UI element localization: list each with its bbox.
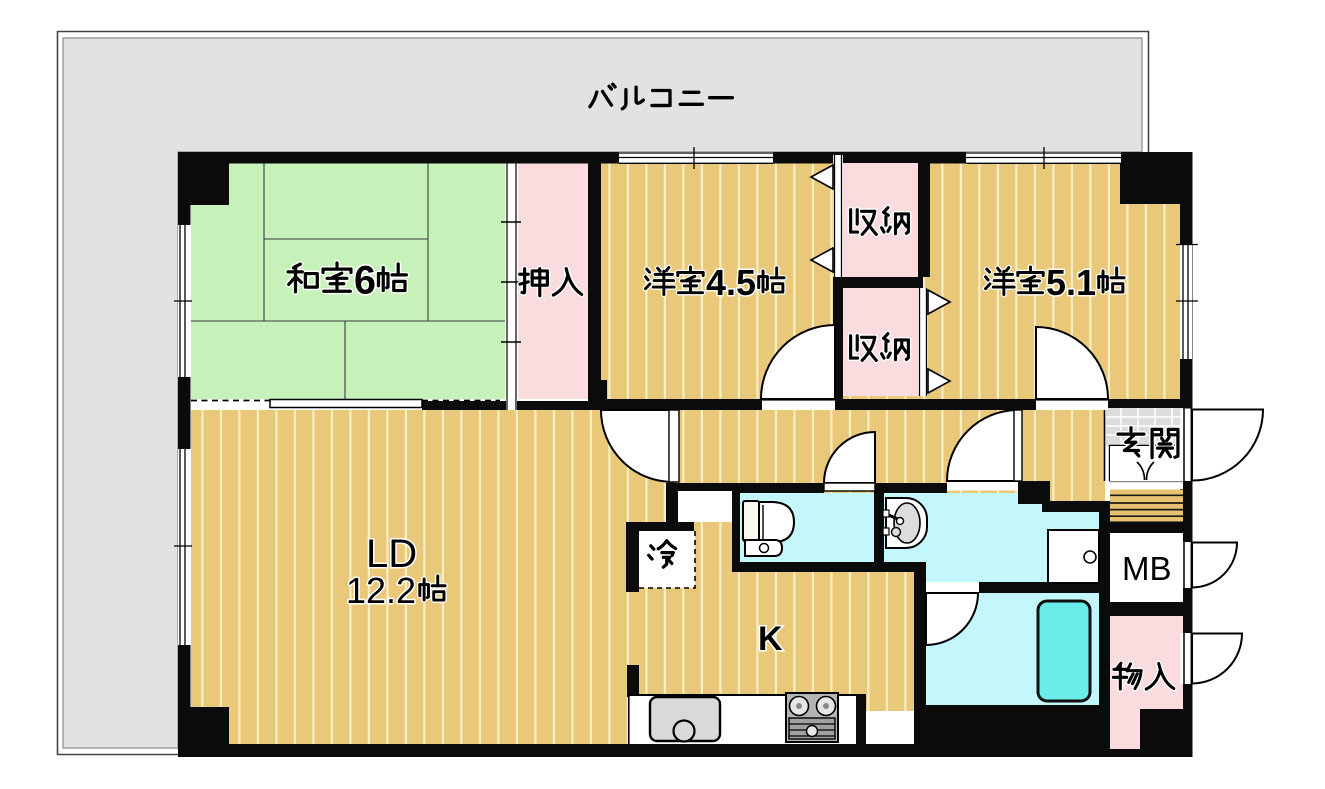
svg-text:12.2: 12.2 [346, 570, 416, 611]
svg-text:5.1: 5.1 [1046, 262, 1096, 303]
svg-text:K: K [758, 620, 783, 658]
svg-text:6: 6 [354, 259, 376, 303]
svg-text:LD: LD [366, 532, 417, 576]
svg-text:4.5: 4.5 [706, 262, 756, 303]
svg-text:MB: MB [1122, 550, 1172, 587]
